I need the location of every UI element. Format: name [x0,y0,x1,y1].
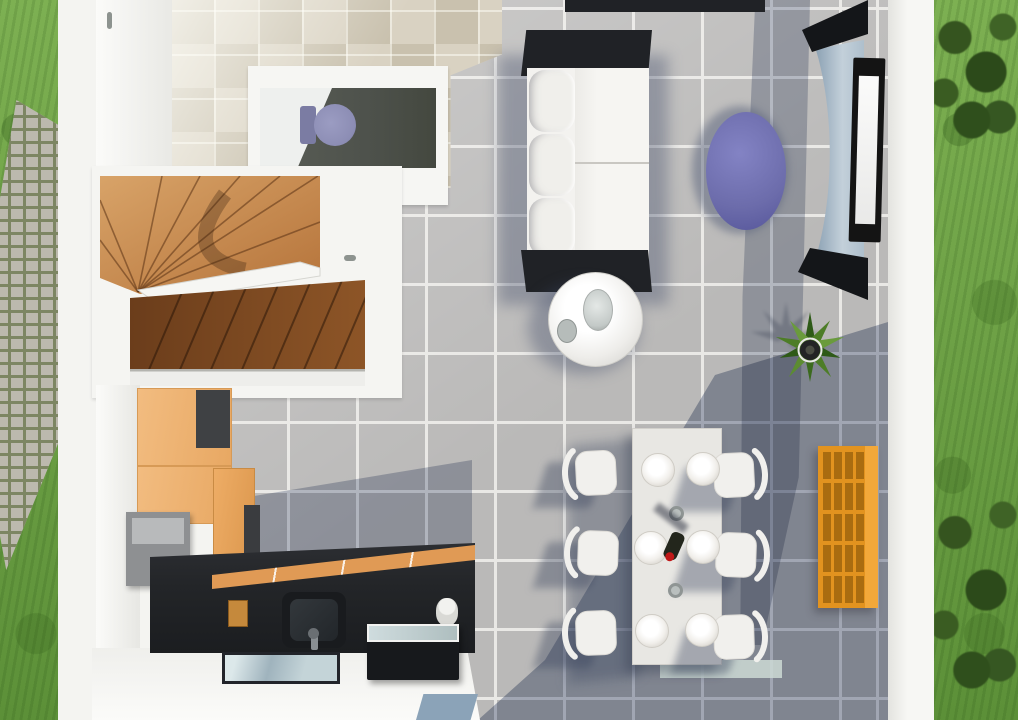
drinking-glass [668,583,683,598]
sofa-back-cushion [529,134,575,196]
sofa [527,68,649,260]
plate [634,531,668,565]
stairs-bottom-step [130,370,365,386]
top-edge-cabinet [565,0,765,12]
sofa-back-cushion [529,198,575,256]
tv-screen [855,76,879,224]
plant-soil [806,346,815,355]
table-lamp-vase [583,289,613,331]
dining-chair [559,523,633,583]
glass-cup [557,319,577,343]
sofa-seat-split [575,162,649,164]
kitchen-cabinet-dark-inset [196,390,230,448]
plate [686,452,720,486]
utensil-box [228,600,248,627]
bottom-wall-window [416,694,478,720]
right-lawn [934,0,1018,720]
purple-side-table [706,112,786,230]
hall-door-handle [344,255,356,261]
entry-door-handle [107,12,112,29]
tv [849,58,886,243]
plate [641,453,675,487]
shrubs-bottom [934,470,1018,720]
shelf-cells [823,451,865,603]
left-lawn [0,0,60,720]
plate [686,530,720,564]
toilet-bowl [314,104,356,146]
sofa-seat-cushions [575,68,649,260]
plate [635,614,669,648]
kitchen-window [222,652,340,684]
paver-path [0,100,60,570]
oven-glass-top [367,624,459,642]
glass-top-oven-unit [367,624,459,680]
sofa-back-cushion [529,70,575,132]
kitchen-sink [282,592,346,648]
plate [685,613,719,647]
shelf-side-face [865,446,878,608]
staircase-well [92,166,402,398]
dining-chair [557,442,632,504]
round-coffee-table [548,272,643,367]
potted-plant [772,310,848,386]
dining-chair [557,603,631,663]
small-white-appliance [436,598,458,626]
appliance-top-face [132,518,184,544]
staircase [100,176,380,390]
floor-plan-scene [0,0,1018,720]
orange-cube-shelf [818,446,878,608]
right-exterior-wall [888,0,936,720]
shrubs-top [934,0,1018,150]
stairs-bottom-step-edge [130,369,365,372]
faucet-head [308,628,319,639]
